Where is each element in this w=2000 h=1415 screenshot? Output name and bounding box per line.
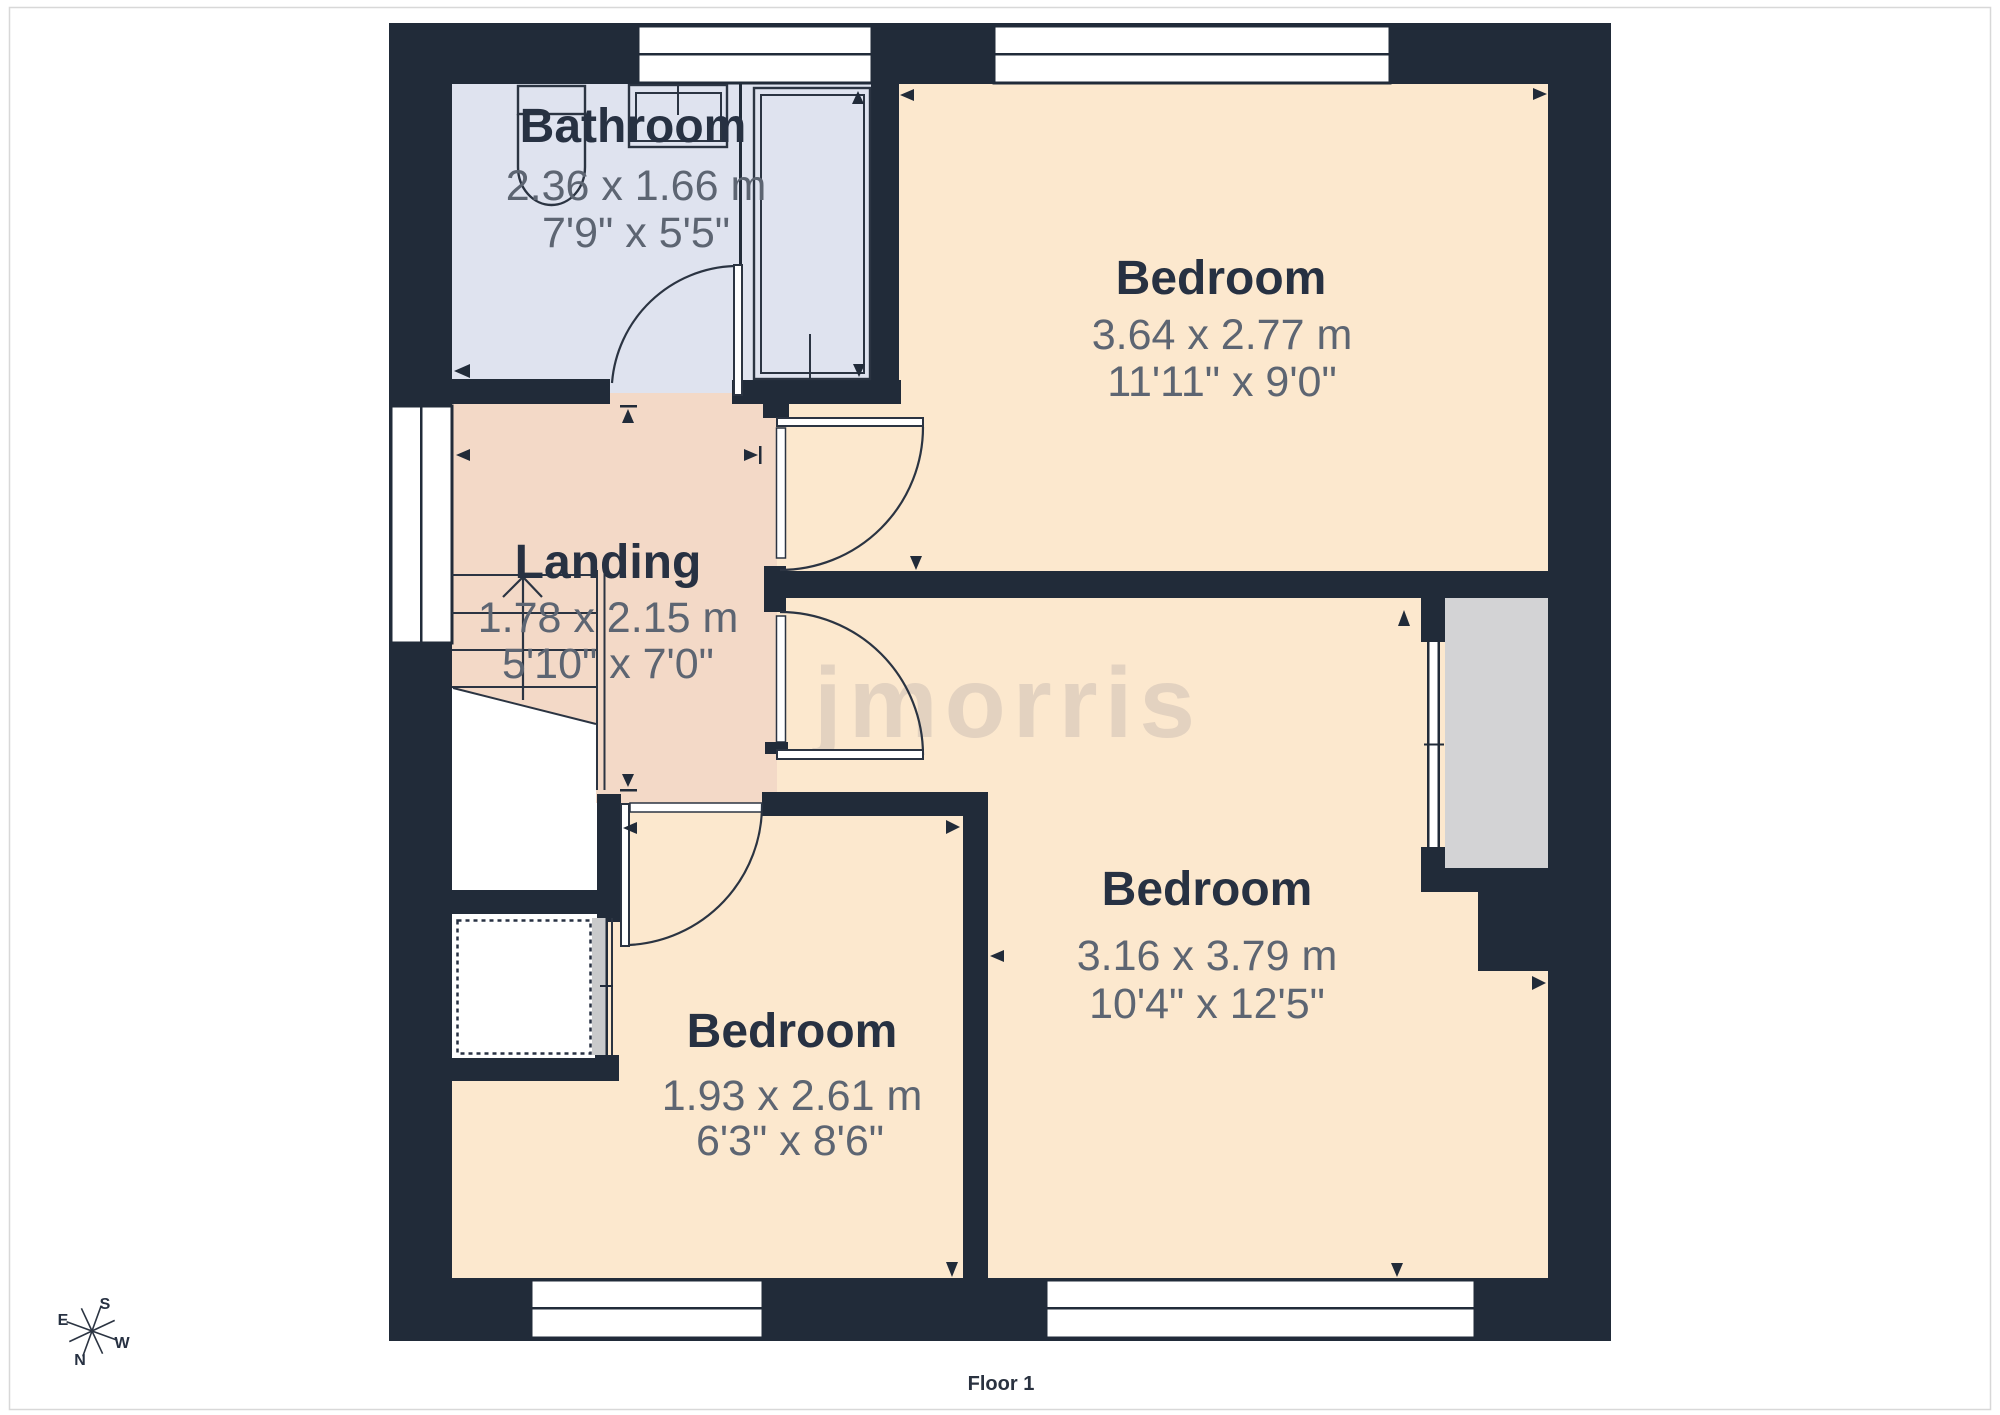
svg-text:3.16 x 3.79 m: 3.16 x 3.79 m [1077, 932, 1338, 980]
svg-text:Bedroom: Bedroom [1116, 252, 1327, 305]
svg-text:1.93 x 2.61 m: 1.93 x 2.61 m [662, 1072, 923, 1120]
svg-text:Bathroom: Bathroom [520, 100, 747, 153]
svg-text:Bedroom: Bedroom [1102, 863, 1313, 916]
svg-text:2.36 x 1.66 m: 2.36 x 1.66 m [506, 162, 767, 210]
svg-text:Bedroom: Bedroom [687, 1005, 898, 1058]
svg-text:1.78 x 2.15 m: 1.78 x 2.15 m [478, 594, 739, 642]
svg-text:11'11" x 9'0": 11'11" x 9'0" [1107, 358, 1336, 406]
svg-text:3.64 x 2.77 m: 3.64 x 2.77 m [1092, 311, 1353, 359]
svg-text:jmorris: jmorris [812, 647, 1202, 759]
svg-text:6'3" x 8'6": 6'3" x 8'6" [696, 1117, 884, 1165]
svg-text:5'10" x 7'0": 5'10" x 7'0" [502, 640, 714, 688]
svg-text:E: E [58, 1312, 69, 1329]
svg-text:Landing: Landing [515, 536, 702, 589]
svg-text:W: W [114, 1335, 130, 1352]
svg-text:7'9" x 5'5": 7'9" x 5'5" [542, 209, 730, 257]
svg-text:N: N [74, 1352, 86, 1369]
svg-text:S: S [100, 1296, 111, 1313]
svg-text:Floor 1: Floor 1 [968, 1373, 1035, 1395]
svg-text:10'4" x 12'5": 10'4" x 12'5" [1089, 980, 1325, 1028]
